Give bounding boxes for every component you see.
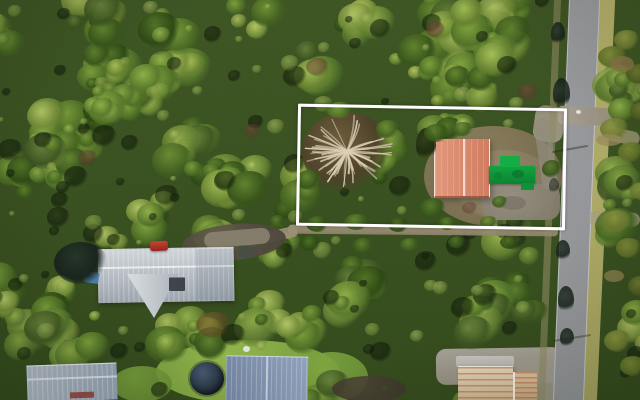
property-boundary-outline: [296, 104, 567, 231]
dirt-right-1: [610, 56, 634, 72]
scrub-right-8: [616, 238, 640, 258]
dirt-right-2: [596, 134, 622, 146]
flower-tree-3: [518, 84, 540, 100]
scrub-right-6: [630, 102, 640, 120]
scrub-right-5: [618, 142, 640, 162]
flower-tree-6: [78, 150, 98, 166]
lane-underhang-1: [300, 236, 322, 251]
road-edge-shadow-2: [553, 78, 570, 110]
road-edge-shadow-1: [551, 22, 565, 46]
lane-underhang-2: [352, 238, 376, 254]
white-dot-road: [576, 110, 581, 114]
scrub-right-2: [614, 30, 640, 50]
flower-tree-4: [244, 124, 262, 138]
lane-underhang-4: [448, 236, 466, 248]
scrub-right-9: [628, 276, 640, 296]
dirt-right-3: [604, 270, 624, 282]
lane-underhang-3: [400, 238, 420, 251]
scrub-right-11: [620, 356, 640, 376]
road-edge-shadow-3: [556, 240, 570, 262]
scrub-right-12: [630, 182, 640, 200]
aerial-photo: [0, 0, 640, 400]
dark-tree-by-silver-house: [54, 242, 108, 284]
lane-underhang-5: [500, 236, 520, 249]
rust-tree: [196, 312, 232, 338]
flower-tree-1: [306, 58, 330, 76]
road-edge-shadow-4: [558, 286, 574, 314]
flower-tree-2: [426, 22, 446, 38]
scrub-right-10: [604, 330, 632, 352]
scrub-right-7: [602, 210, 632, 232]
